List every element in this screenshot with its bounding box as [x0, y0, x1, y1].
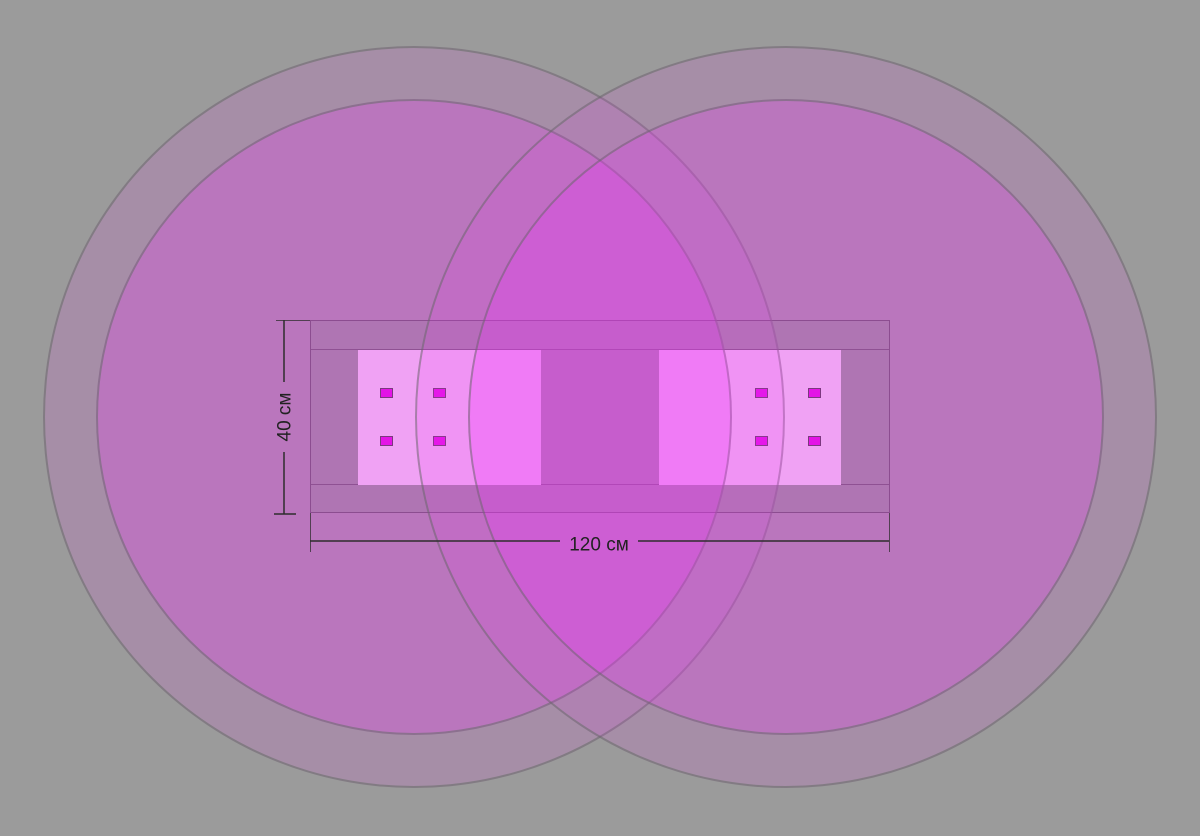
coverage-diagram: 40 см 120 см [0, 0, 1200, 836]
right-lamp-coverage-inner-circle [468, 99, 1104, 735]
height-dimension-line-lower [283, 452, 285, 514]
width-dimension-line-right [638, 540, 889, 542]
height-dimension-witness-bottom [274, 513, 296, 515]
height-dimension-line-upper [283, 320, 285, 382]
height-dimension-witness-top [276, 320, 310, 322]
width-dimension-witness-right [889, 513, 891, 552]
width-dimension-witness-left [310, 513, 312, 552]
width-dimension-line-left [310, 540, 560, 542]
height-dimension-label: 40 см [276, 393, 295, 442]
width-dimension-label: 120 см [569, 536, 629, 555]
